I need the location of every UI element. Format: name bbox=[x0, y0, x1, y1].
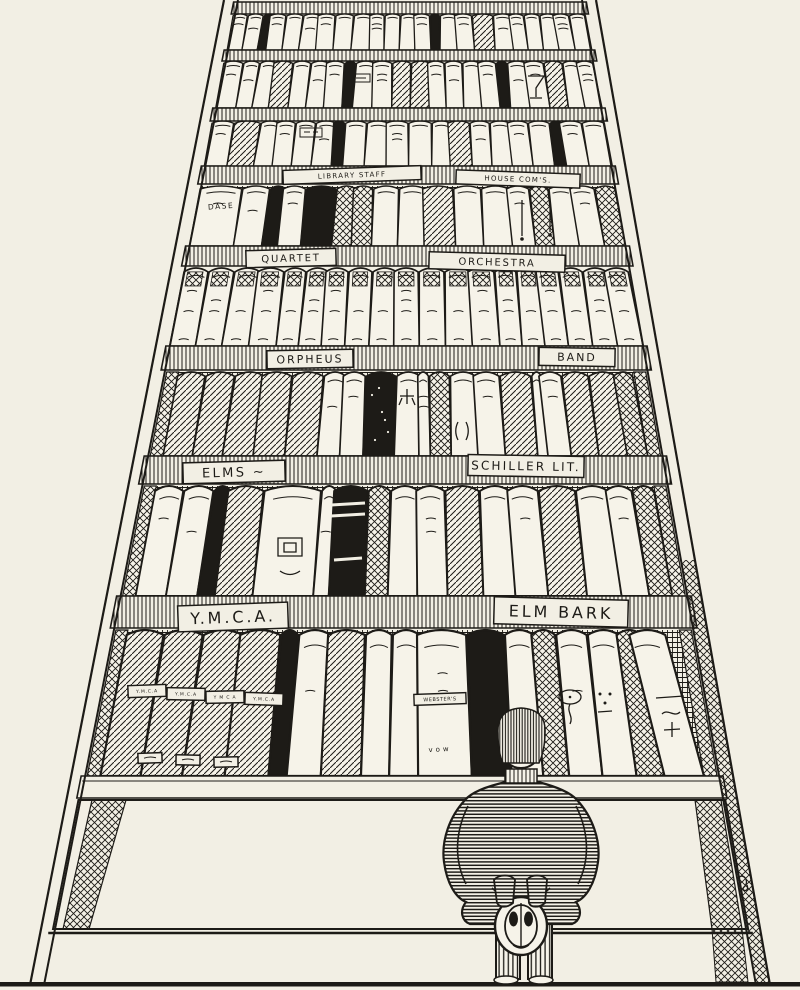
book-spine bbox=[414, 14, 431, 50]
book-spine bbox=[363, 372, 396, 456]
shelf-label-text: ORCHESTRA bbox=[458, 257, 535, 270]
floor-line bbox=[0, 982, 800, 987]
book-spine bbox=[371, 186, 398, 246]
spine-text: DASE bbox=[208, 201, 235, 212]
shelf-row bbox=[123, 486, 686, 596]
book-spine bbox=[384, 14, 400, 50]
book-spine bbox=[394, 372, 420, 456]
spine-label-patch: Y M C A bbox=[206, 691, 244, 704]
book-spine bbox=[369, 14, 384, 50]
book-spine bbox=[445, 61, 464, 108]
spine-label-patch: Y.M.C.A bbox=[128, 684, 166, 697]
shelf-label-text: SCHILLER LIT. bbox=[471, 458, 581, 474]
shelf-label: ELM BARK bbox=[494, 597, 629, 627]
shelf-row bbox=[87, 630, 717, 776]
person-shoe-left bbox=[494, 976, 518, 984]
book-spine bbox=[372, 61, 392, 108]
hat-shadow-right bbox=[524, 912, 533, 927]
book-spine bbox=[388, 486, 419, 596]
shelf-label-text: ELM BARK bbox=[509, 601, 614, 623]
shelf-label-text: BAND bbox=[557, 351, 597, 365]
shelf-row bbox=[150, 372, 660, 456]
shelf-label: QUARTET bbox=[246, 248, 336, 267]
shelf-label: ORPHEUS bbox=[267, 349, 353, 368]
person-hand-left bbox=[494, 876, 515, 907]
music-dot bbox=[520, 237, 524, 241]
shelf-board bbox=[222, 50, 597, 61]
spine-label-patch: Y.M.C.A bbox=[167, 688, 205, 701]
shelf-label: BAND bbox=[539, 347, 615, 366]
book-spine bbox=[386, 121, 409, 166]
spine-text-label: WEBSTER'S bbox=[423, 696, 457, 703]
book-spine bbox=[343, 121, 367, 166]
hat-shadow-left bbox=[509, 912, 518, 927]
shelf-row bbox=[190, 186, 626, 246]
shelf-board bbox=[210, 108, 607, 121]
shelf-row bbox=[170, 268, 643, 346]
shelf-board bbox=[77, 776, 727, 798]
spine-label-patch-text: Y M C A bbox=[213, 694, 237, 700]
spine-label-patch bbox=[138, 753, 162, 764]
person-head bbox=[498, 708, 545, 768]
shelf-row bbox=[227, 14, 592, 50]
shelf-board bbox=[231, 2, 588, 14]
bookshelf-illustration: LIBRARY STAFFHOUSE COM'S.QUARTETORCHESTR… bbox=[0, 0, 800, 990]
shelf-label: ORCHESTRA bbox=[429, 252, 565, 273]
book-spine bbox=[431, 14, 441, 50]
shelf-label-text: Y.M.C.A. bbox=[189, 606, 276, 628]
shelf-label: ELMS ~ bbox=[183, 460, 286, 484]
book-spine bbox=[397, 186, 425, 246]
spine-label-patch-text: Y.M.C.A bbox=[174, 691, 197, 697]
person-collar bbox=[505, 769, 537, 783]
right-inner-post-base bbox=[712, 929, 748, 982]
person-shoe-right bbox=[529, 976, 553, 984]
person-hand-right bbox=[527, 876, 547, 907]
spine-text: vow bbox=[428, 745, 452, 754]
spine-text: WEBSTER'S bbox=[414, 693, 466, 706]
music-dot bbox=[548, 233, 552, 237]
shelf-row bbox=[204, 121, 612, 166]
shelf-label: SCHILLER LIT. bbox=[468, 454, 584, 477]
shelf-label-text: ORPHEUS bbox=[276, 352, 343, 366]
spine-label-patch bbox=[214, 757, 238, 767]
spine-label-patch bbox=[176, 755, 200, 765]
shelf-label-text: ELMS ~ bbox=[202, 465, 266, 482]
spine-label-patch: Y.M.C.A bbox=[245, 692, 283, 705]
book-spine bbox=[454, 186, 484, 246]
shelf-label-text: QUARTET bbox=[261, 253, 321, 266]
spine-text-label: DASE bbox=[208, 201, 235, 212]
book-spine bbox=[409, 121, 432, 166]
shelf-row bbox=[216, 61, 602, 108]
shelf-label: Y.M.C.A. bbox=[178, 602, 289, 632]
book-spine bbox=[416, 486, 447, 596]
spine-label-patch-text: Y.M.C.A bbox=[135, 688, 158, 695]
person-hair bbox=[498, 708, 545, 763]
face-doodle-eye bbox=[569, 696, 572, 699]
spine-text-label: vow bbox=[428, 745, 452, 754]
spine-label-patch-text: Y.M.C.A bbox=[252, 696, 275, 703]
